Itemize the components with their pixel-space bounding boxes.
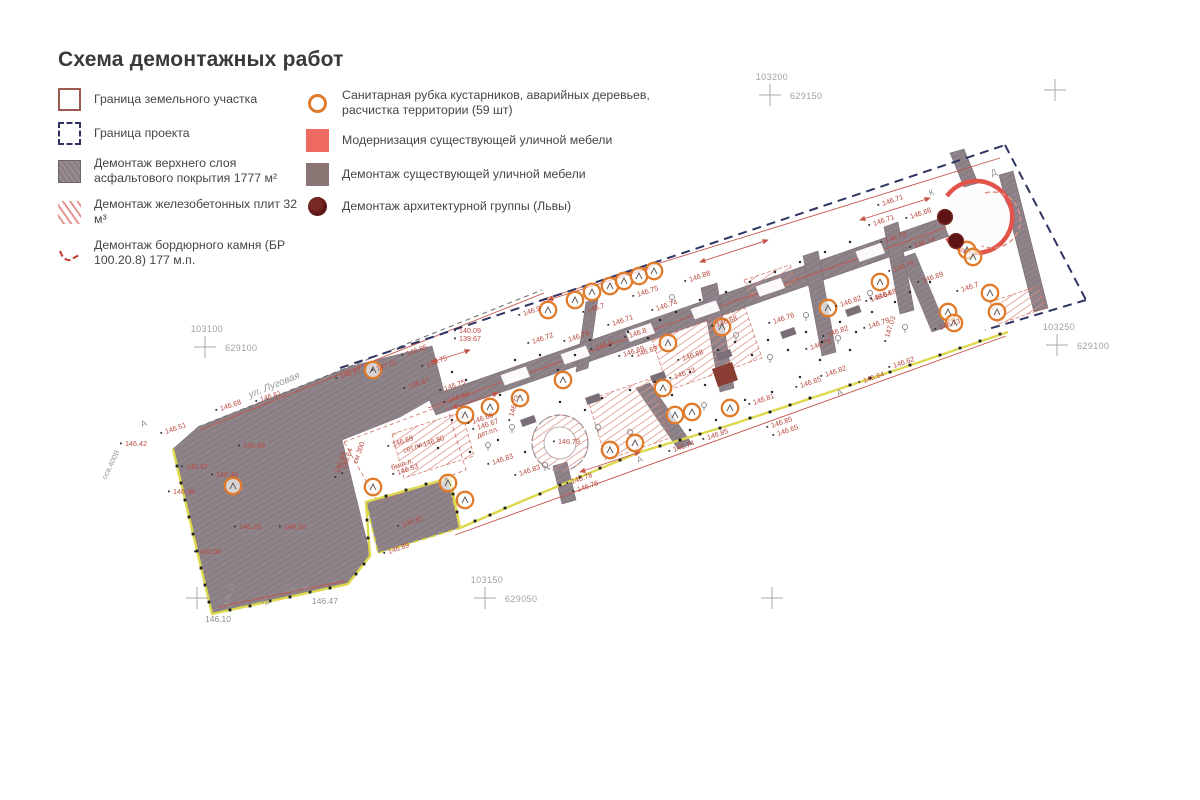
boundary-dot (367, 537, 370, 540)
survey-dot (717, 349, 719, 351)
sanitary-cut-tree-icon (584, 284, 600, 300)
survey-dot (559, 401, 561, 403)
survey-dot (774, 271, 776, 273)
tree-ring (965, 249, 981, 265)
survey-dot (819, 359, 821, 361)
boundary-dot (289, 596, 292, 599)
coordinate-cross (761, 587, 783, 609)
plan-text-label: 146.10 (205, 614, 231, 624)
cross-northing-label: 103100 (191, 324, 223, 334)
tree-ring (584, 284, 600, 300)
elevation-label: 146.51 (164, 420, 188, 436)
survey-dot (849, 349, 851, 351)
elevation-point (487, 463, 489, 465)
small-tree-crown (902, 324, 907, 329)
boundary-dot (456, 511, 459, 514)
elevation-point (956, 290, 958, 292)
small-tree-crown (767, 354, 772, 359)
plan-text-label: гр (262, 596, 270, 606)
tree-ring (722, 400, 738, 416)
survey-dot (671, 394, 673, 396)
cross-northing-label: 103200 (756, 72, 788, 82)
tree-ring (457, 407, 473, 423)
cross-easting-label: 629100 (225, 343, 257, 353)
boundary-dot (959, 347, 962, 350)
boundary-dot (504, 507, 507, 510)
boundary-dot (208, 601, 211, 604)
lion-sculpture-icon (938, 210, 953, 225)
survey-dot (849, 241, 851, 243)
boundary-dot (405, 489, 408, 492)
small-tree-icon (902, 324, 907, 333)
elevation-label: 146.88 (688, 268, 712, 284)
boundary-dot (559, 484, 562, 487)
survey-dot (824, 251, 826, 253)
boundary-dot (229, 609, 232, 612)
survey-dot (539, 354, 541, 356)
elevation-label: 146.36 (173, 487, 195, 496)
sanitary-cut-tree-icon (722, 400, 738, 416)
elevation-label: 146.83 (518, 462, 542, 478)
bench-block (780, 327, 797, 339)
boundary-dot (385, 495, 388, 498)
elevation-point (211, 474, 213, 476)
elevation-point (553, 441, 555, 443)
elevation-point (168, 491, 170, 493)
small-tree-crown (803, 312, 808, 317)
sanitary-cut-tree-icon (872, 274, 888, 290)
boundary-dot (979, 340, 982, 343)
sanitary-cut-tree-icon (667, 407, 683, 423)
tree-ring (982, 285, 998, 301)
boundary-dot (809, 397, 812, 400)
survey-dot (497, 439, 499, 441)
elevation-point (668, 450, 670, 452)
boundary-dot (192, 533, 195, 536)
boundary-dot (355, 573, 358, 576)
sanitary-cut-tree-icon (989, 304, 1005, 320)
sanitary-cut-tree-icon (660, 335, 676, 351)
sanitary-cut-tree-icon (567, 292, 583, 308)
elevation-point (868, 224, 870, 226)
elevation-label: 146.79 (558, 437, 580, 446)
elevation-point (563, 340, 565, 342)
survey-dot (799, 261, 801, 263)
elevation-label: 146.69 (921, 269, 945, 285)
elevation-point (768, 322, 770, 324)
elevation-point (514, 474, 516, 476)
elevation-point (215, 409, 217, 411)
survey-dot (767, 339, 769, 341)
lion-sculpture-icon (949, 234, 964, 249)
elevation-label: 146.65 (799, 374, 823, 390)
sanitary-cut-tree-icon (602, 442, 618, 458)
survey-dot (601, 397, 603, 399)
survey-dot (557, 369, 559, 371)
elevation-label: 146.48 (243, 441, 265, 450)
elevation-point (618, 355, 620, 357)
cross-easting-label: 629050 (505, 594, 537, 604)
elevation-label: 146.9 (522, 304, 542, 318)
coordinate-cross (186, 587, 208, 609)
survey-dot (749, 281, 751, 283)
boundary-dot (539, 493, 542, 496)
elevation-point (508, 419, 510, 421)
boundary-dot (452, 493, 455, 496)
elevation-point (181, 466, 183, 468)
tree-ring (540, 302, 556, 318)
boundary-dot (699, 433, 702, 436)
coordinate-cross (1044, 79, 1066, 101)
survey-dot (574, 354, 576, 356)
small-tree-icon (509, 424, 514, 433)
survey-dot (744, 399, 746, 401)
plan-text-label: осв.400В (100, 449, 122, 481)
sanitary-cut-tree-icon (365, 479, 381, 495)
boundary-dot (184, 499, 187, 502)
sanitary-cut-tree-icon (965, 249, 981, 265)
cross-northing-label: 103250 (1043, 322, 1075, 332)
elevation-point (472, 428, 474, 430)
elevation-label: 146.7 (960, 280, 980, 294)
asphalt-main-area (173, 346, 444, 614)
boundary-dot (329, 587, 332, 590)
sanitary-cut-tree-icon (555, 372, 571, 388)
tree-ring (627, 435, 643, 451)
coordinate-cross: 103200629150 (756, 72, 823, 106)
survey-dot (909, 291, 911, 293)
elevation-point (194, 551, 196, 553)
site-plan-drawing: 146.85147.01146.87146.67146.75146.84146.… (0, 0, 1200, 800)
sanitary-cut-tree-icon (457, 492, 473, 508)
elevation-point (766, 426, 768, 428)
survey-dot (659, 319, 661, 321)
elevation-point (234, 526, 236, 528)
elevation-label: 146.08 (199, 547, 221, 556)
elevation-label: 146.32 (284, 522, 306, 531)
boundary-dot (474, 520, 477, 523)
elevation-point (454, 338, 456, 340)
sanitary-cut-tree-icon (225, 478, 241, 494)
survey-dot (437, 447, 439, 449)
cross-easting-label: 629100 (1077, 341, 1109, 351)
boundary-dot (249, 605, 252, 608)
boundary-dot (939, 354, 942, 357)
sanitary-cut-tree-icon (540, 302, 556, 318)
elevation-label: 146.71 (611, 312, 635, 328)
sanitary-cut-tree-icon (440, 475, 456, 491)
elevation-point (748, 403, 750, 405)
survey-dot (805, 331, 807, 333)
boundary-dot (425, 483, 428, 486)
survey-dot (469, 451, 471, 453)
boundary-dot (196, 550, 199, 553)
small-tree-icon (835, 335, 840, 344)
elevation-point (279, 526, 281, 528)
tree-ring (684, 404, 700, 420)
boundary-dot (489, 514, 492, 517)
elevation-label: 146.64 (862, 369, 886, 385)
elevation-label: 146.26 (239, 522, 261, 531)
elevation-label: 146.42 (125, 439, 147, 448)
elevation-label: 146.71 (881, 192, 905, 208)
sanitary-cut-tree-icon (457, 407, 473, 423)
survey-dot (451, 419, 453, 421)
survey-dot (799, 376, 801, 378)
elevation-point (905, 217, 907, 219)
plan-text-label: 146.30 (284, 584, 310, 594)
tree-ring (660, 335, 676, 351)
elevation-label: 146.85 (706, 426, 730, 442)
drawing-sheet: Схема демонтажных работ Граница земельно… (0, 0, 1200, 800)
elevation-point (632, 295, 634, 297)
small-tree-crown (485, 442, 490, 447)
boundary-dot (180, 482, 183, 485)
plan-text-label: 146.47 (312, 596, 338, 606)
boundary-dot (200, 567, 203, 570)
tree-ring (225, 478, 241, 494)
boundary-dot (366, 519, 369, 522)
boundary-dot (176, 465, 179, 468)
cross-northing-label: 103150 (471, 575, 503, 585)
elevation-point (795, 386, 797, 388)
survey-dot (855, 331, 857, 333)
tree-ring (820, 300, 836, 316)
boundary-dot (789, 404, 792, 407)
sanitary-cut-tree-icon (646, 263, 662, 279)
boundary-dot (204, 584, 207, 587)
small-tree-icon (767, 354, 772, 363)
elevation-label: 146.75 (636, 283, 660, 299)
elevation-label: 146.74 (655, 297, 679, 313)
survey-dot (839, 321, 841, 323)
tree-ring (602, 442, 618, 458)
elevation-point (120, 443, 122, 445)
boundary-dot (769, 411, 772, 414)
plan-text-label: Д (989, 166, 998, 177)
small-tree-icon (701, 402, 706, 411)
elevation-label: 146.81 (752, 391, 776, 407)
boundary-dot (749, 417, 752, 420)
elevation-point (772, 434, 774, 436)
survey-dot (675, 311, 677, 313)
sanitary-cut-tree-icon (655, 380, 671, 396)
elevation-point (888, 366, 890, 368)
tree-ring (555, 372, 571, 388)
boundary-dot (659, 445, 662, 448)
elevation-point (820, 375, 822, 377)
survey-dot (689, 429, 691, 431)
boundary-dot (999, 333, 1002, 336)
survey-dot (751, 354, 753, 356)
elevation-point (518, 314, 520, 316)
small-tree-crown (701, 402, 706, 407)
survey-dot (699, 299, 701, 301)
small-tree-icon (485, 442, 490, 451)
elevation-point (877, 204, 879, 206)
elevation-label: 146.46 (216, 470, 238, 479)
survey-dot (725, 291, 727, 293)
elevation-label: 146.66 (909, 205, 933, 221)
elevation-point (865, 300, 867, 302)
elevation-point (651, 309, 653, 311)
sanitary-cut-tree-icon (627, 435, 643, 451)
survey-dot (451, 371, 453, 373)
sanitary-cut-tree-icon (820, 300, 836, 316)
elevation-point (684, 280, 686, 282)
elevation-label: 146.82 (824, 363, 848, 379)
elevation-point (888, 270, 890, 272)
tree-ring (440, 475, 456, 491)
elevation-point (884, 340, 886, 342)
survey-dot (715, 419, 717, 421)
elevation-point (863, 327, 865, 329)
elevation-label: 146.76 (772, 310, 796, 326)
tree-ring (655, 380, 671, 396)
boundary-dot (363, 563, 366, 566)
elevation-point (805, 348, 807, 350)
cross-easting-label: 629150 (790, 91, 822, 101)
elevation-label: 139.67 (459, 334, 481, 343)
plan-text-label: К (927, 187, 935, 198)
tree-ring (567, 292, 583, 308)
small-tree-icon (803, 312, 808, 321)
survey-dot (465, 379, 467, 381)
bench-block (520, 415, 537, 427)
survey-dot (871, 311, 873, 313)
sanitary-cut-tree-icon (982, 285, 998, 301)
survey-dot (524, 451, 526, 453)
survey-dot (894, 301, 896, 303)
elevation-point (454, 330, 456, 332)
boundary-dot (679, 439, 682, 442)
coordinate-cross: 103250629100 (1043, 322, 1110, 356)
elevation-point (238, 445, 240, 447)
coordinate-cross: 103100629100 (191, 324, 258, 358)
survey-dot (499, 394, 501, 396)
elevation-point (255, 400, 257, 402)
boundary-dot (599, 467, 602, 470)
tree-ring (989, 304, 1005, 320)
sanitary-cut-tree-icon (684, 404, 700, 420)
elevation-label: 146.72 (531, 330, 555, 346)
boundary-dot (889, 371, 892, 374)
small-tree-crown (509, 424, 514, 429)
plan-text-label: А (139, 417, 148, 428)
tree-ring (457, 492, 473, 508)
boundary-dot (849, 384, 852, 387)
plan-text-label: см 300 (350, 440, 366, 464)
survey-dot (704, 384, 706, 386)
elevation-point (582, 311, 584, 313)
plan-text-label: А (635, 453, 644, 464)
tree-ring (667, 407, 683, 423)
elevation-point (607, 324, 609, 326)
survey-dot (734, 341, 736, 343)
survey-dot (787, 349, 789, 351)
boundary-dot (188, 516, 191, 519)
tree-ring (872, 274, 888, 290)
survey-dot (589, 339, 591, 341)
tree-ring (365, 479, 381, 495)
elevation-point (527, 342, 529, 344)
survey-dot (647, 337, 649, 339)
elevation-point (392, 473, 394, 475)
elevation-point (702, 438, 704, 440)
elevation-label: 146.47 (186, 462, 208, 471)
tree-ring (646, 263, 662, 279)
elevation-label: 146.83 (491, 451, 515, 467)
coordinate-cross: 103150629050 (471, 575, 538, 609)
survey-dot (584, 409, 586, 411)
survey-dot (629, 389, 631, 391)
elevation-point (387, 445, 389, 447)
survey-dot (514, 359, 516, 361)
elevation-point (160, 432, 162, 434)
